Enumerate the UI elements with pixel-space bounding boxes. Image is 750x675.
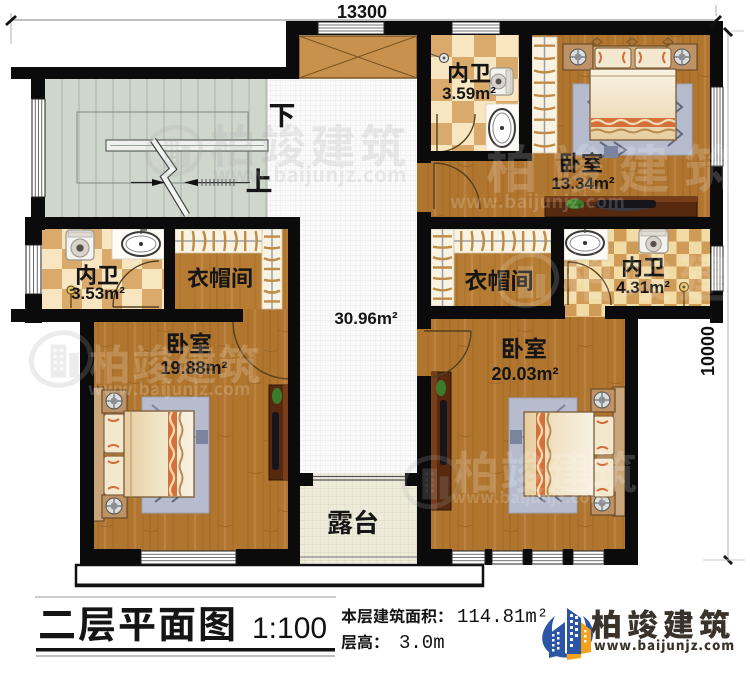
svg-text:3.0m: 3.0m [399,632,445,654]
svg-text:20.03m²: 20.03m² [491,364,558,384]
svg-text:10000: 10000 [698,326,718,376]
svg-text:1:100: 1:100 [252,612,327,645]
svg-text:13300: 13300 [337,2,387,22]
svg-text:30.96m²: 30.96m² [334,309,398,328]
svg-text:3.59m²: 3.59m² [442,84,496,103]
svg-text:114.81m²: 114.81m² [457,606,548,628]
svg-text:3.53m²: 3.53m² [71,284,125,303]
